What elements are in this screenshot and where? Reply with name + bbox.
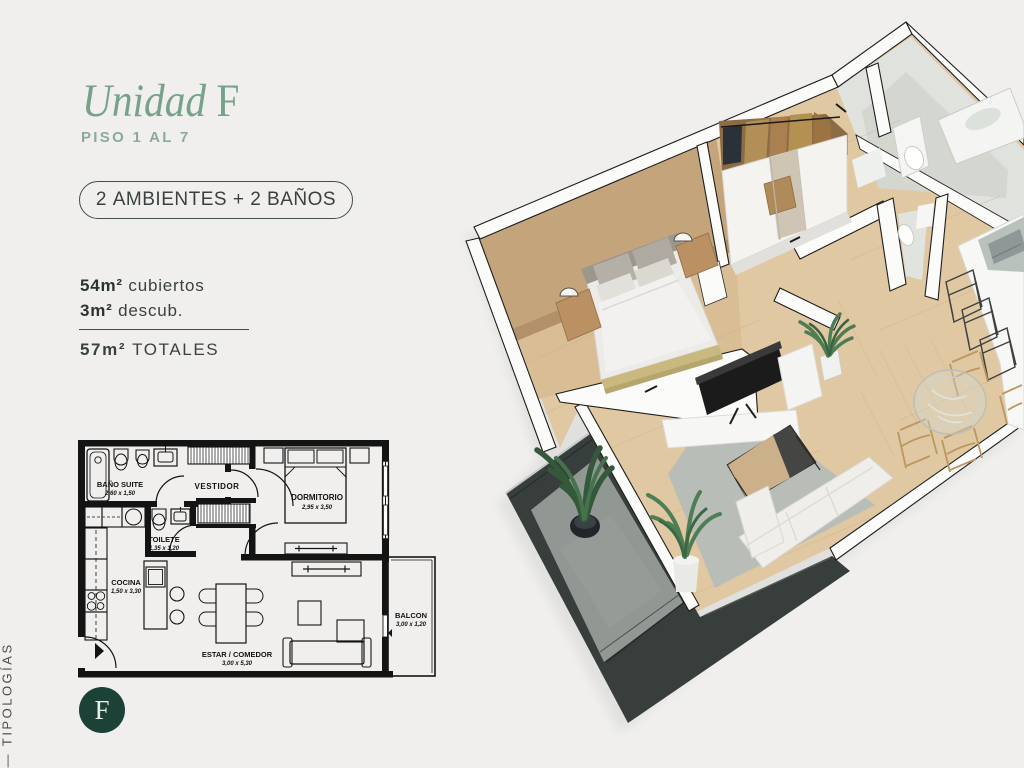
svg-text:TOILETE: TOILETE xyxy=(148,535,180,544)
svg-text:BAÑO SUITE: BAÑO SUITE xyxy=(97,480,143,489)
svg-text:COCINA: COCINA xyxy=(111,578,141,587)
svg-text:2,60 x 1,50: 2,60 x 1,50 xyxy=(104,491,136,497)
svg-text:DORMITORIO: DORMITORIO xyxy=(291,493,343,502)
svg-text:3,00 x 1,20: 3,00 x 1,20 xyxy=(396,622,427,628)
svg-text:ESTAR / COMEDOR: ESTAR / COMEDOR xyxy=(202,650,273,659)
svg-text:BALCON: BALCON xyxy=(395,611,427,620)
svg-text:1,35 x 1,20: 1,35 x 1,20 xyxy=(149,546,180,552)
svg-text:3,00 x 5,30: 3,00 x 5,30 xyxy=(222,661,253,667)
svg-text:2,95 x 3,50: 2,95 x 3,50 xyxy=(301,505,333,511)
svg-text:VESTIDOR: VESTIDOR xyxy=(195,482,240,491)
svg-text:1,50 x 3,30: 1,50 x 3,30 xyxy=(111,589,142,595)
